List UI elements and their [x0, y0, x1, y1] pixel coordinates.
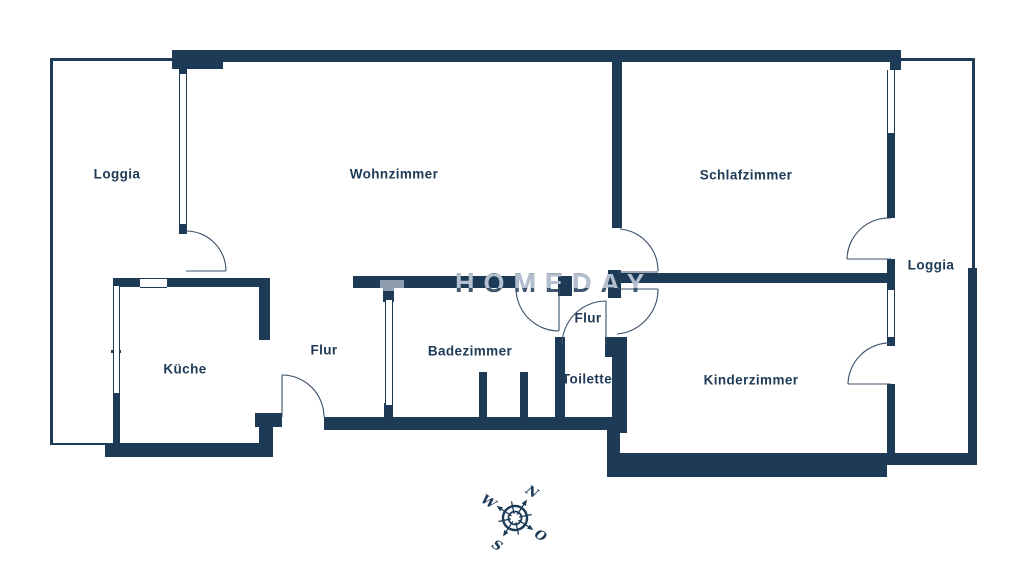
- door-arc: [847, 218, 891, 259]
- compass-spokes: [491, 494, 538, 541]
- door-arc: [617, 289, 658, 334]
- room-label-toilette: Toilette: [562, 372, 612, 387]
- room-label-kinderzimmer: Kinderzimmer: [704, 373, 799, 388]
- room-label-flur-main: Flur: [310, 343, 337, 358]
- door-arc: [282, 375, 324, 417]
- door-arc: [186, 231, 226, 271]
- compass-inner-ring: [506, 509, 524, 527]
- room-label-schlafzimmer: Schlafzimmer: [700, 168, 793, 183]
- compass-rose: N O S W: [461, 465, 567, 561]
- compass-outer-ring: [498, 501, 531, 534]
- door-arc: [516, 289, 559, 331]
- compass-letter-north: N: [522, 482, 542, 502]
- compass-letter-west: W: [478, 492, 500, 513]
- compass-letter-east: O: [531, 527, 549, 546]
- door-swings-and-compass: N O S W: [0, 0, 1024, 561]
- room-label-badezimmer: Badezimmer: [428, 344, 512, 359]
- room-label-wohnzimmer: Wohnzimmer: [350, 167, 439, 182]
- door-arc: [620, 229, 658, 271]
- floor-plan: HOMEDAY Loggia Wohnzimmer Schlafzimmer L…: [0, 0, 1024, 561]
- room-label-loggia-right: Loggia: [908, 258, 955, 273]
- room-label-flur-small: Flur: [574, 311, 601, 326]
- room-label-kueche: Küche: [163, 362, 206, 377]
- compass-letter-south: S: [489, 537, 505, 555]
- room-label-loggia-left: Loggia: [94, 167, 141, 182]
- door-arc: [848, 343, 891, 384]
